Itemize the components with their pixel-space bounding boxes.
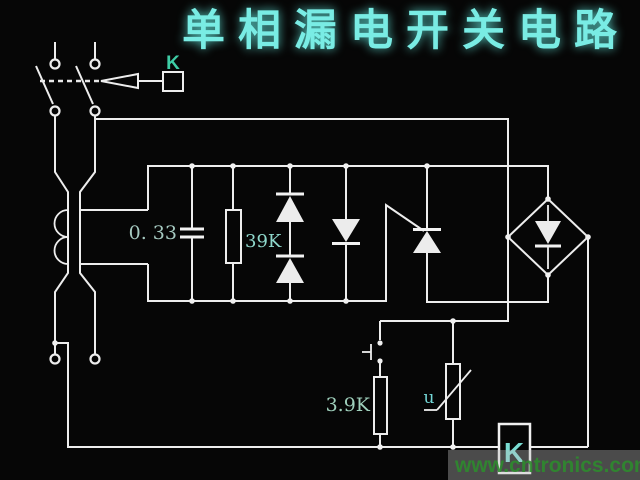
contact-terminal — [91, 60, 100, 69]
schematic-page: 单相漏电开关电路 K — [0, 0, 640, 480]
varistor-label: u — [424, 388, 435, 408]
background — [0, 0, 640, 480]
resistor-3-9k-value: 3.9K — [326, 394, 371, 416]
page-title: 单相漏电开关电路 — [182, 6, 630, 56]
contact-terminal — [91, 107, 100, 116]
contact-terminal — [51, 107, 60, 116]
watermark-text: www.cntronics.com — [454, 454, 640, 477]
button-contact — [377, 358, 382, 363]
watermark: www.cntronics.com — [448, 450, 640, 480]
load-terminal — [51, 355, 60, 364]
resistor-39k-value: 39K — [245, 231, 282, 252]
capacitor-value: 0. 33 — [129, 222, 177, 244]
circuit-canvas: 单相漏电开关电路 K — [0, 0, 640, 480]
contact-terminal — [51, 60, 60, 69]
load-terminal — [91, 355, 100, 364]
button-contact — [377, 340, 382, 345]
relay-contact-label: K — [166, 53, 180, 74]
